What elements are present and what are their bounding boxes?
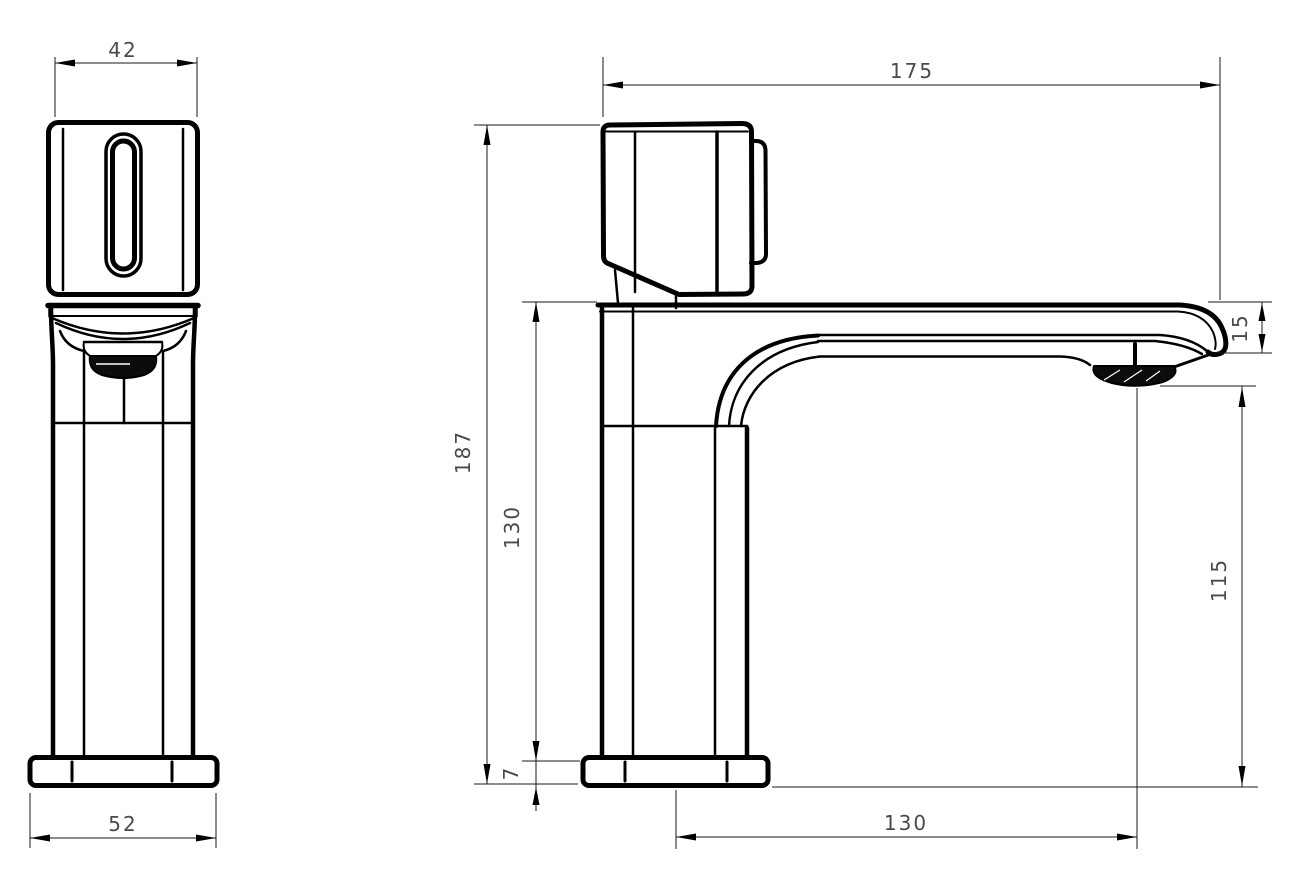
extension-lines	[522, 302, 597, 761]
base-front	[30, 758, 217, 786]
dim-tip-height: 15	[1208, 302, 1272, 353]
extension-lines	[474, 125, 600, 784]
arrowhead-bottom	[484, 764, 491, 784]
arrowhead-left	[676, 834, 696, 841]
drawing-canvas: 42 52	[0, 0, 1290, 875]
dim-under-spout-height: 130	[500, 302, 597, 761]
spout-fillet	[716, 336, 820, 427]
body-column-side	[602, 308, 747, 757]
dim-base-thickness: 7	[499, 761, 540, 811]
dim-label-130v: 130	[500, 505, 524, 549]
extension-lines	[772, 386, 1258, 787]
spout-front	[48, 306, 198, 340]
aerator-side	[1093, 344, 1175, 386]
dim-label-15: 15	[1228, 313, 1252, 342]
dim-label-175: 175	[890, 59, 934, 83]
dim-label-42: 42	[108, 38, 137, 62]
dim-label-130b: 130	[884, 811, 928, 835]
arrowhead-top	[1239, 387, 1246, 407]
dim-base-width: 52	[30, 793, 216, 848]
arrowhead-bottom	[1239, 766, 1246, 786]
spout-side	[598, 305, 1226, 367]
extension-lines	[603, 57, 1220, 300]
arrowhead-left	[55, 60, 75, 67]
arrowhead-left	[603, 82, 623, 89]
arrowhead-right	[196, 835, 216, 842]
extension-lines	[55, 57, 197, 117]
dim-handle-width: 42	[55, 38, 197, 117]
dim-label-7: 7	[499, 766, 523, 781]
dim-label-52: 52	[108, 812, 137, 836]
arrowhead-top	[484, 125, 491, 145]
arrowhead-right	[1117, 834, 1137, 841]
arrowhead-top	[533, 302, 540, 322]
dim-label-187: 187	[451, 430, 475, 474]
arrowhead-up	[533, 787, 540, 805]
dim-label-115: 115	[1207, 558, 1231, 602]
handle-side	[603, 124, 752, 309]
aerator-front	[84, 342, 163, 378]
base-side	[583, 758, 768, 786]
handle-front	[49, 123, 198, 295]
dim-overall-height: 187	[451, 125, 600, 784]
arrowhead-right	[177, 60, 197, 67]
front-view: 42 52	[30, 38, 217, 848]
arrowhead-top	[1259, 303, 1266, 321]
faucet-dimension-drawing: 42 52	[0, 0, 1290, 875]
arrowhead-bottom	[533, 741, 540, 761]
arrowhead-left	[30, 835, 50, 842]
dim-outlet-clearance: 115	[772, 386, 1258, 787]
arrowhead-right	[1200, 82, 1220, 89]
dim-overall-length: 175	[603, 57, 1220, 300]
arrowhead-bottom	[1259, 334, 1266, 352]
handle-slot-inner	[113, 141, 135, 269]
side-view: 175 187 130 7	[451, 57, 1272, 849]
